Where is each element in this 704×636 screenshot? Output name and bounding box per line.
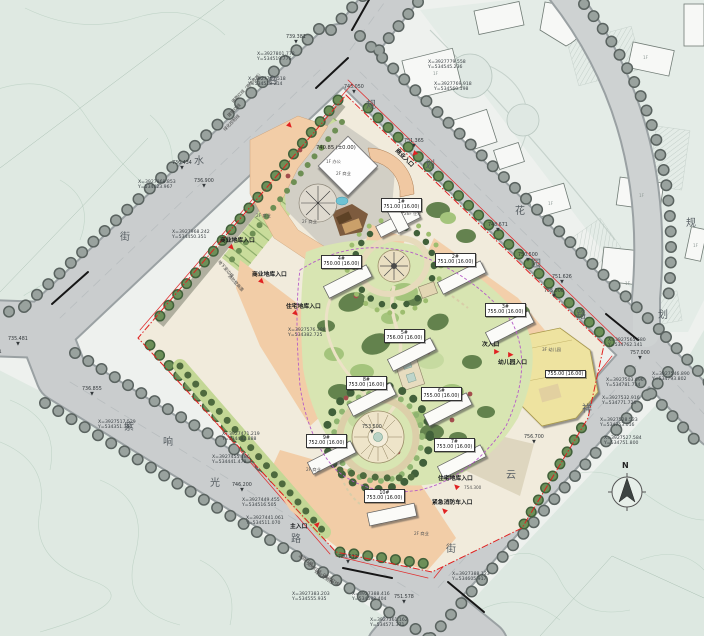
pond: [336, 197, 348, 205]
north-label: N: [622, 462, 629, 471]
site-plan-drawing: [0, 0, 704, 636]
site-plan: 白水街规划花园路规划紫响光路祥云街X=3927801.778 Y=534519.…: [0, 0, 704, 636]
